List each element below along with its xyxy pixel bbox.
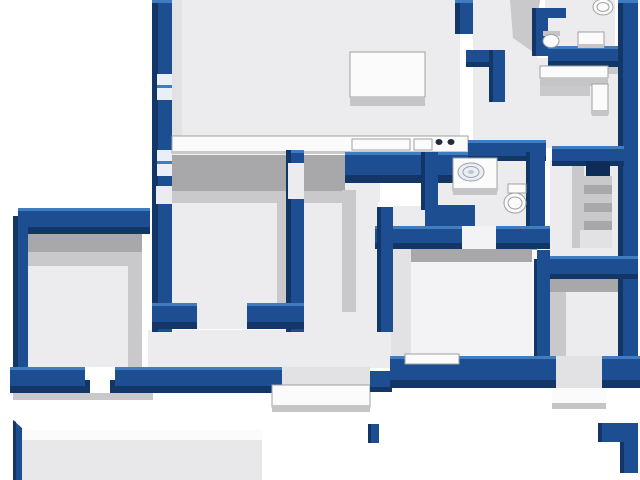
shadow-bedroom-left-top xyxy=(28,232,142,252)
wall-entry-upper-side xyxy=(455,0,460,34)
wall-south-long-bevel xyxy=(10,367,282,370)
balcony-slab xyxy=(22,440,262,480)
stove-burner-1 xyxy=(436,139,443,145)
shadow-under-long-wall xyxy=(13,392,153,400)
tub-drain xyxy=(468,170,474,174)
shadow-room-bc-west xyxy=(391,248,411,358)
porch-top xyxy=(272,385,370,407)
wall-bed-center-east-bevel xyxy=(291,150,304,153)
door-west xyxy=(156,186,172,204)
shadow-kitchen-fade xyxy=(168,191,345,203)
stair-landing-bottom xyxy=(580,230,612,248)
wall-kitchen xyxy=(345,155,470,175)
stair-step-6 xyxy=(584,221,612,230)
wall-bath-tr-north xyxy=(536,8,566,18)
wall-room-bc-west xyxy=(381,207,393,332)
wall-entry-upper xyxy=(460,0,473,34)
step-room-br-side xyxy=(552,403,606,409)
window-west-1-bar xyxy=(157,85,172,88)
door-south-stub-1 xyxy=(85,380,90,393)
door-room-br-south xyxy=(556,356,602,388)
closet-shadow xyxy=(540,86,590,96)
wall-room-br-north xyxy=(539,259,638,274)
shadow-bedroom-left-fade xyxy=(28,252,142,266)
balcony-edge xyxy=(22,430,262,440)
door-bed-center-south xyxy=(197,303,247,329)
wall-entry-vertical xyxy=(493,50,505,102)
floor-room-bottom-center xyxy=(391,248,537,358)
tub-side xyxy=(453,188,497,195)
garden-wall-vertical-side xyxy=(620,442,624,473)
wall-bath-mid-west-side xyxy=(421,152,425,210)
wall-stair-north xyxy=(552,149,624,161)
stair-landing-top xyxy=(586,161,610,176)
wall-entry-upper-cap xyxy=(455,0,473,3)
wall-bed-left-north-bevel xyxy=(18,208,150,211)
shadow-bedroom-left-east xyxy=(128,252,142,367)
closet-strip-top xyxy=(540,66,608,78)
wall-bed-left-north xyxy=(18,211,150,227)
stove-burner-2 xyxy=(448,139,455,145)
wall-bath-mid-southwest xyxy=(425,205,475,226)
wall-kitchen-bevel xyxy=(345,152,470,155)
wall-room-bc-west-side xyxy=(377,207,381,332)
wall-south-long xyxy=(10,370,282,386)
stair-step-3 xyxy=(584,194,612,203)
wall-porch-east-side xyxy=(370,387,392,392)
wall-porch-east xyxy=(370,371,392,387)
shadow-kitchen-wall xyxy=(168,155,345,191)
door-bed-center-east xyxy=(288,163,304,199)
wall-west-cap xyxy=(152,0,172,3)
stair-step-5 xyxy=(584,212,612,221)
wall-bath-tr-west-side xyxy=(532,8,536,56)
shadow-room-br-west xyxy=(550,292,566,362)
wall-right-tall-cap xyxy=(618,0,638,3)
table-top xyxy=(350,52,425,97)
stair-step-4 xyxy=(584,203,612,212)
closet-vertical-top xyxy=(592,84,608,114)
door-room-bc-north xyxy=(462,226,496,249)
wall-bath-mid-east-side xyxy=(526,152,530,234)
floor-plan-svg xyxy=(0,0,640,480)
wall-entry-vertical-side xyxy=(489,50,493,102)
wall-bath-mid-west xyxy=(425,152,438,210)
toilet-mid-tank xyxy=(508,184,526,193)
wall-bath-mid-north-bevel xyxy=(468,140,546,143)
wall-room-bc-south-side xyxy=(390,380,548,388)
shadow-room-bc-top xyxy=(410,248,537,262)
garden-wall-vertical xyxy=(624,442,638,473)
wall-bed-left-north-side xyxy=(18,227,150,234)
porch-side xyxy=(272,405,370,412)
wall-right-tall xyxy=(623,0,638,365)
shadow-room-br-top xyxy=(550,278,626,292)
wall-south-long-side xyxy=(10,386,282,393)
floor-plan-image xyxy=(0,0,640,480)
wall-bath-tr-south xyxy=(548,49,622,61)
wall-room-br-north-bevel xyxy=(539,256,638,259)
stair-step-2 xyxy=(584,185,612,194)
wall-stair-north-bevel xyxy=(552,146,624,149)
door-south-stub-2 xyxy=(110,380,115,393)
window-west-2-bar xyxy=(157,161,172,164)
windowsill-room-bc xyxy=(405,354,459,364)
table-side xyxy=(350,97,425,106)
wall-bed-left-west xyxy=(18,216,28,390)
cabinet-tr-side xyxy=(578,44,604,48)
shadow-hallway-strip xyxy=(342,190,356,312)
sink-tr-basin xyxy=(543,35,559,48)
balcony-wall-edge xyxy=(13,420,16,480)
toilet-mid-bowl xyxy=(504,193,526,213)
wall-kitchen-side xyxy=(345,175,470,183)
wall-room-bc-west-cap xyxy=(378,202,393,207)
wall-room-br-north-side xyxy=(539,274,638,279)
garden-wall-horizontal xyxy=(602,423,638,442)
step-room-br xyxy=(552,388,606,403)
porch-back xyxy=(282,367,370,387)
wall-room-br-west xyxy=(537,250,550,362)
garden-wall-horizontal-side xyxy=(598,423,602,442)
wall-bath-mid-east xyxy=(530,152,545,234)
wall-stub-side xyxy=(368,424,371,443)
stair-step-1 xyxy=(584,176,612,185)
wall-bed-left-west-side xyxy=(13,216,18,390)
closet-vertical-side xyxy=(592,110,608,116)
wall-stub xyxy=(371,424,379,443)
wall-right-tall-side xyxy=(618,0,623,365)
